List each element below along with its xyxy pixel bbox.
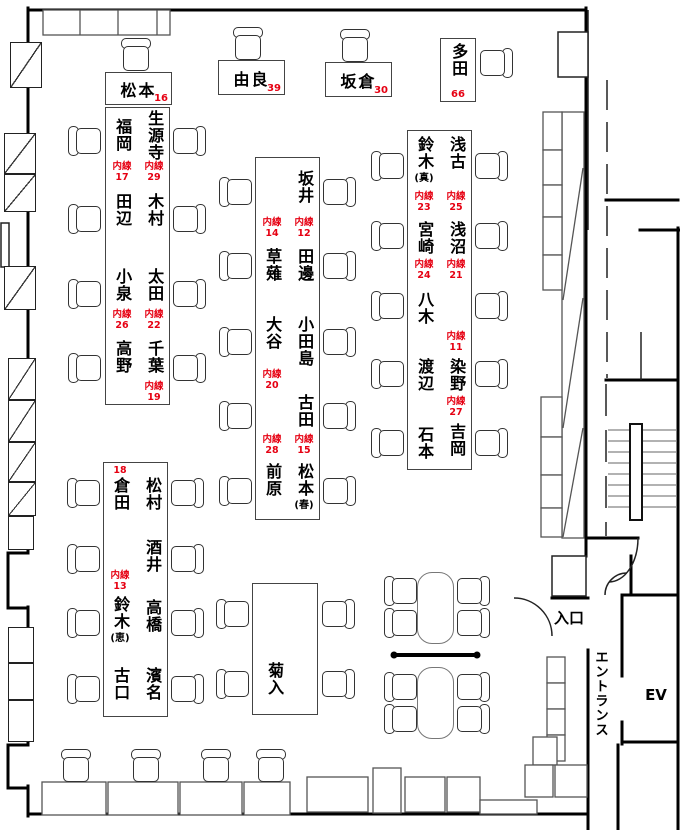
divider-end-right <box>474 652 481 659</box>
seat-kimura: 木村 <box>139 193 169 227</box>
pillar-hatched-3 <box>4 174 36 212</box>
divider-end-left <box>391 652 398 659</box>
wall-left-jut-1 <box>8 553 28 608</box>
table-divider <box>391 652 481 659</box>
desk-extension: 39 <box>267 83 281 94</box>
chair-icon <box>371 291 405 321</box>
seat-name-suffix: (春) <box>294 496 313 511</box>
wall-left-jut-2 <box>8 745 28 788</box>
seat-name: 松本 <box>296 463 312 497</box>
seat-name: 石本 <box>416 426 432 460</box>
seat-name: 吉岡 <box>448 423 464 457</box>
chair-icon <box>68 204 102 234</box>
extension-suzuki-megumi: 内線 13 <box>105 570 135 593</box>
seat-name: 鈴木 <box>416 136 432 170</box>
right-shelf-6 <box>541 397 562 437</box>
chair-icon <box>172 126 206 156</box>
seat-odajima: 小田島 <box>289 316 319 367</box>
hall-label: エントランス <box>590 650 610 737</box>
desk-name: 多田 <box>450 43 466 77</box>
bottom-cabinet-4 <box>447 777 480 812</box>
seat-furuguchi: 古口 <box>105 667 135 701</box>
extension-shogenji: 内線 29 <box>139 161 169 184</box>
seat-name: 田辺 <box>114 193 130 227</box>
extension-chiba: 内線 19 <box>139 381 169 404</box>
chair-icon <box>68 126 102 156</box>
chair-icon <box>456 608 490 638</box>
seat-name: 倉田 <box>112 477 128 511</box>
bottom-cabinet-3 <box>405 777 445 812</box>
stair-rail <box>630 424 642 520</box>
top-cabinet-strip <box>43 10 170 35</box>
seat-takano: 高野 <box>107 340 137 374</box>
right-shelf-7 <box>541 437 562 475</box>
hall-shelf-3 <box>547 709 565 735</box>
chair-icon <box>172 353 206 383</box>
staircase <box>608 424 676 520</box>
extension-sakai: 内線 12 <box>289 217 319 240</box>
pillar-plain-1 <box>8 516 34 550</box>
seat-name: 濱名 <box>144 667 160 701</box>
desk-extension: 16 <box>154 93 168 104</box>
seat-suzuki-megumi: 鈴木(恵) <box>105 596 135 644</box>
seat-matsumoto-haru: 松本(春) <box>289 463 319 511</box>
seat-koizumi: 小泉 <box>107 268 137 302</box>
chair-icon <box>456 704 490 734</box>
chair-icon <box>67 674 101 704</box>
chair-icon <box>371 151 405 181</box>
chair-icon <box>170 674 204 704</box>
seat-ota: 太田 <box>139 268 169 302</box>
seat-tanabe: 田辺 <box>107 193 137 227</box>
seat-takahashi: 高橋 <box>137 599 167 633</box>
seat-kurata: 倉田 <box>105 477 135 511</box>
right-shelf-9 <box>541 508 562 537</box>
right-shelf-2 <box>543 150 562 185</box>
chair-icon <box>474 291 508 321</box>
chair-icon <box>67 478 101 508</box>
seat-name: 大谷 <box>264 316 280 350</box>
extension-furuta: 内線 15 <box>289 434 319 457</box>
hall-shelf-2 <box>547 683 565 709</box>
seat-name: 八木 <box>416 291 432 325</box>
seat-name: 松村 <box>144 477 160 511</box>
seat-yoshioka: 吉岡 <box>441 423 471 457</box>
right-counter-band <box>562 112 584 538</box>
meeting-table-2 <box>417 667 454 739</box>
bottom-desk-4 <box>244 782 290 815</box>
island-4: 18 倉田 松村 酒井 内線 13 鈴木(恵) 高橋 古口 濱名 <box>103 462 168 717</box>
chair-icon <box>172 204 206 234</box>
desk-yura: 由良 39 <box>218 60 285 95</box>
seat-shogenji: 生源寺 <box>139 110 169 161</box>
pillar-hatched-5 <box>8 358 36 400</box>
seat-name: 小田島 <box>296 316 312 367</box>
chair-icon <box>322 177 356 207</box>
elevator-label: EV <box>634 686 678 704</box>
extension-otani: 内線 20 <box>257 369 287 392</box>
chair-icon <box>321 669 355 699</box>
desk-name: 松本 <box>120 77 156 101</box>
seat-name: 福岡 <box>114 118 130 152</box>
seat-name: 浅古 <box>448 136 464 170</box>
chair-icon <box>322 401 356 431</box>
bottom-desk-2 <box>108 782 178 815</box>
extension-asako: 内線 25 <box>441 191 471 214</box>
chair-icon <box>384 672 418 702</box>
seat-ishimoto: 石本 <box>409 426 439 460</box>
chair-icon <box>371 428 405 458</box>
chair-icon <box>384 704 418 734</box>
corner-box-2 <box>525 765 553 797</box>
right-shelf-3 <box>543 185 562 217</box>
chair-icon <box>340 29 370 63</box>
chair-icon <box>322 327 356 357</box>
seat-sakai: 坂井 <box>289 170 319 204</box>
seat-name: 太田 <box>146 268 162 302</box>
seat-miyazaki: 宮崎 <box>409 221 439 255</box>
right-shelf-8 <box>541 475 562 508</box>
pillar-plain-2 <box>8 627 34 663</box>
desk-tada: 多田 66 <box>440 38 476 102</box>
seat-kikuiri: 菊入 <box>259 662 289 696</box>
seat-someno: 染野 <box>441 358 471 392</box>
pillar-plain-3 <box>8 663 34 700</box>
chair-icon <box>201 749 231 783</box>
chair-icon <box>172 279 206 309</box>
bottom-desk-3 <box>180 782 242 815</box>
chair-icon <box>216 599 250 629</box>
entrance-box <box>552 556 586 596</box>
top-right-box <box>558 32 588 77</box>
seat-yagi: 八木 <box>409 291 439 325</box>
extension-ota: 内線 22 <box>139 309 169 332</box>
chair-icon <box>170 608 204 638</box>
pillar-hatched-8 <box>8 482 36 516</box>
chair-icon <box>474 151 508 181</box>
chair-icon <box>371 221 405 251</box>
extension-koizumi: 内線 26 <box>107 309 137 332</box>
pillar-hatched-4 <box>4 266 36 310</box>
bottom-cabinet-5 <box>480 800 537 814</box>
extension-kurata: 18 <box>105 465 135 476</box>
meeting-table-1 <box>417 572 454 644</box>
door-swing-arc-stairs <box>609 538 638 582</box>
seat-name: 酒井 <box>144 539 160 573</box>
chair-icon <box>68 353 102 383</box>
pillar-plain-4 <box>8 700 34 742</box>
chair-icon <box>219 327 253 357</box>
chair-icon <box>170 544 204 574</box>
seat-name-suffix: (恵) <box>110 629 129 644</box>
seat-name: 菊入 <box>266 662 282 696</box>
extension-someno: 内線 11 <box>441 331 471 354</box>
desk-sakakura: 坂倉 30 <box>325 62 392 97</box>
hall-shelf-1 <box>547 657 565 683</box>
seat-suzuki-makoto: 鈴木(真) <box>409 136 439 184</box>
chair-icon <box>67 544 101 574</box>
seat-asako: 浅古 <box>441 136 471 170</box>
chair-icon <box>384 608 418 638</box>
extension-miyazaki: 内線 24 <box>409 259 439 282</box>
bottom-cabinet-2 <box>373 768 401 813</box>
extension-suzuki-makoto: 内線 23 <box>409 191 439 214</box>
seat-name: 田邊 <box>296 248 312 282</box>
desk-name: 坂倉 <box>340 68 376 92</box>
seat-name: 古口 <box>112 667 128 701</box>
chair-icon <box>384 576 418 606</box>
seat-name-suffix: (真) <box>414 169 433 184</box>
chair-icon <box>256 749 286 783</box>
right-shelf-5 <box>543 255 562 290</box>
chair-icon <box>321 599 355 629</box>
corner-box-3 <box>555 765 587 797</box>
seat-name: 古田 <box>296 394 312 428</box>
chair-icon <box>456 672 490 702</box>
chair-icon <box>322 476 356 506</box>
seat-fukuoka: 福岡 <box>107 118 137 152</box>
chair-icon <box>61 749 91 783</box>
seat-name: 生源寺 <box>146 110 162 161</box>
entrance-label: 入口 <box>546 607 592 628</box>
chair-icon <box>371 359 405 389</box>
chair-icon <box>474 359 508 389</box>
extension-fukuoka: 内線 17 <box>107 161 137 184</box>
table-kikuiri: 菊入 <box>252 583 318 715</box>
island-3: 鈴木(真) 内線 23 浅古 内線 25 宮崎 内線 24 浅沼 内線 21 八… <box>407 130 472 470</box>
chair-icon <box>219 177 253 207</box>
left-wall-door <box>1 223 9 267</box>
extension-yoshioka: 内線 27 <box>441 396 471 419</box>
chair-icon <box>170 478 204 508</box>
seat-furuta: 古田 <box>289 394 319 428</box>
seat-maehara: 前原 <box>257 463 287 497</box>
seat-otani: 大谷 <box>257 316 287 350</box>
seat-name: 千葉 <box>146 340 162 374</box>
seat-name: 草薙 <box>264 248 280 282</box>
extension-asanuma: 内線 21 <box>441 259 471 282</box>
island-2: 坂井 内線 12 内線 14 草薙 田邊 大谷 内線 20 小田島 古田 内線 … <box>255 157 320 520</box>
right-shelf-4 <box>543 217 562 255</box>
seat-asanuma: 浅沼 <box>441 221 471 255</box>
chair-icon <box>68 279 102 309</box>
seat-name: 染野 <box>448 358 464 392</box>
seat-name: 浅沼 <box>448 221 464 255</box>
pillar-hatched-6 <box>8 400 36 442</box>
bottom-cabinet-1 <box>307 777 368 812</box>
seat-name: 高野 <box>114 340 130 374</box>
seat-hamana: 濱名 <box>137 667 167 701</box>
desk-extension: 66 <box>441 89 475 100</box>
chair-icon <box>474 221 508 251</box>
bottom-desk-1 <box>42 782 106 815</box>
chair-icon <box>322 251 356 281</box>
extension-kusanagi: 内線 14 <box>257 217 287 240</box>
seat-name: 前原 <box>264 463 280 497</box>
chair-icon <box>219 476 253 506</box>
pillar-hatched-7 <box>8 442 36 482</box>
right-shelf-1 <box>543 112 562 150</box>
chair-icon <box>219 401 253 431</box>
seat-tanabe-2: 田邊 <box>289 248 319 282</box>
seat-name: 小泉 <box>114 268 130 302</box>
extension-maehara: 内線 28 <box>257 434 287 457</box>
chair-icon <box>219 251 253 281</box>
pillar-hatched-1 <box>10 42 42 88</box>
chair-icon <box>131 749 161 783</box>
chair-icon <box>67 608 101 638</box>
seat-name: 渡辺 <box>416 358 432 392</box>
seat-matsumura: 松村 <box>137 477 167 511</box>
seat-chiba: 千葉 <box>139 340 169 374</box>
seat-name: 高橋 <box>144 599 160 633</box>
pillar-hatched-2 <box>4 133 36 174</box>
thin-walls <box>1 10 641 636</box>
seat-watanabe: 渡辺 <box>409 358 439 392</box>
corner-box-1 <box>533 737 557 765</box>
chair-icon <box>479 48 513 78</box>
desk-extension: 30 <box>374 85 388 96</box>
chair-icon <box>456 576 490 606</box>
seat-name: 鈴木 <box>112 596 128 630</box>
seat-name: 坂井 <box>296 170 312 204</box>
seat-kusanagi: 草薙 <box>257 248 287 282</box>
chair-icon <box>233 27 263 61</box>
chair-icon <box>216 669 250 699</box>
island-1: 福岡 内線 17 生源寺 内線 29 田辺 木村 小泉 内線 26 太田 内線 … <box>105 107 170 405</box>
seat-name: 木村 <box>146 193 162 227</box>
seat-name: 宮崎 <box>416 221 432 255</box>
seat-sakai-2: 酒井 <box>137 539 167 573</box>
chair-icon <box>121 38 151 72</box>
desk-matsumoto: 松本 16 <box>105 72 172 105</box>
desk-name: 由良 <box>233 66 269 90</box>
chair-icon <box>474 428 508 458</box>
